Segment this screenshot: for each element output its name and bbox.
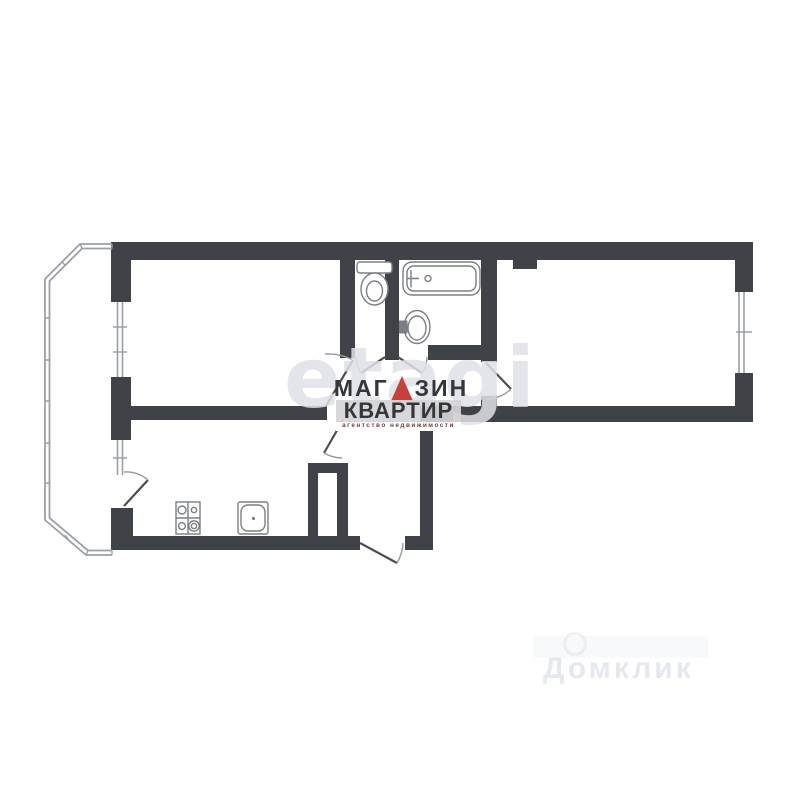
logo-tagline-text: агентство недвижимости bbox=[342, 423, 455, 429]
glazing-ticks bbox=[45, 244, 112, 555]
wall-right-lower bbox=[735, 373, 753, 422]
window-kitchen-left bbox=[113, 440, 127, 475]
window-bedroom-left bbox=[113, 302, 127, 377]
window-room-right bbox=[736, 292, 752, 373]
logo-text-part1: МАГ bbox=[334, 377, 389, 400]
closet-wall-right bbox=[337, 463, 348, 550]
wall-bottom-kitchen bbox=[111, 536, 360, 550]
corner-watermark-text: Домклик bbox=[543, 654, 694, 684]
door-arc-kitchen bbox=[324, 453, 342, 458]
bathtub-fixture bbox=[403, 262, 480, 295]
door-leaf-entrance bbox=[360, 543, 397, 563]
gas-stove-fixture bbox=[176, 502, 200, 534]
balcony-glazing bbox=[45, 244, 112, 555]
agency-logo-band: КВАРТИР bbox=[336, 400, 461, 422]
floor-plan-image: etagi МАГ ЗИН КВАРТИР агентство недвижим… bbox=[0, 0, 800, 800]
wall-pilaster bbox=[513, 260, 537, 269]
agency-logo-tagline: агентство недвижимости bbox=[336, 422, 461, 431]
closet-wall-left bbox=[308, 463, 318, 550]
door-leaf-balcony bbox=[124, 480, 148, 506]
wall-right-upper bbox=[735, 242, 753, 292]
door-arc-balcony bbox=[124, 472, 148, 480]
wall-top bbox=[111, 242, 753, 260]
glazing-outer bbox=[45, 244, 112, 555]
kitchen-sink-fixture bbox=[238, 502, 268, 534]
agency-logo-line1: МАГ ЗИН bbox=[346, 373, 456, 400]
corner-watermark: Домклик bbox=[533, 632, 718, 694]
wall-left-upper bbox=[111, 260, 131, 302]
glazing-inner bbox=[50, 249, 113, 551]
door-arc-entrance bbox=[397, 543, 403, 563]
logo-text-part2: ЗИН bbox=[415, 377, 469, 400]
logo-text-line2: КВАРТИР bbox=[344, 400, 453, 422]
